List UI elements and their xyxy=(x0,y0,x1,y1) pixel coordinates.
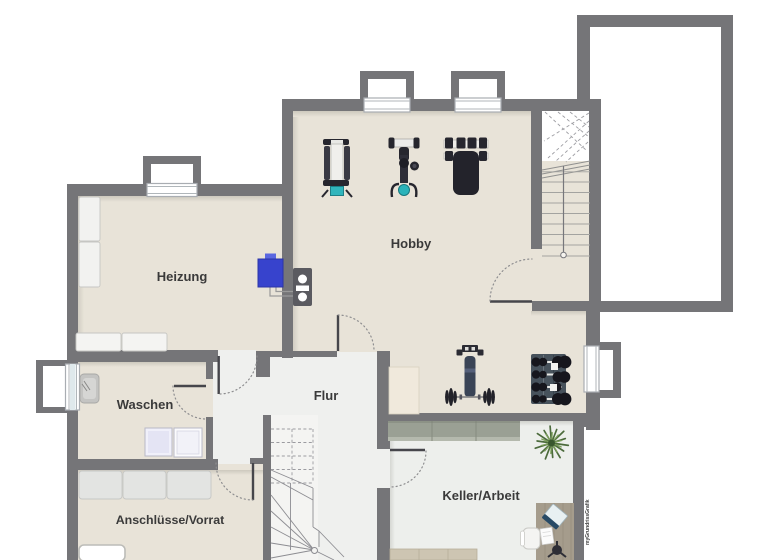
svg-text:Keller/Arbeit: Keller/Arbeit xyxy=(442,488,520,503)
svg-text:Flur: Flur xyxy=(314,388,339,403)
svg-text:Hobby: Hobby xyxy=(391,236,432,251)
svg-text:Heizung: Heizung xyxy=(157,269,208,284)
svg-text:myGrundrissGrafik: myGrundrissGrafik xyxy=(585,499,591,545)
svg-text:Waschen: Waschen xyxy=(117,397,174,412)
svg-text:Anschlüsse/Vorrat: Anschlüsse/Vorrat xyxy=(116,513,225,527)
